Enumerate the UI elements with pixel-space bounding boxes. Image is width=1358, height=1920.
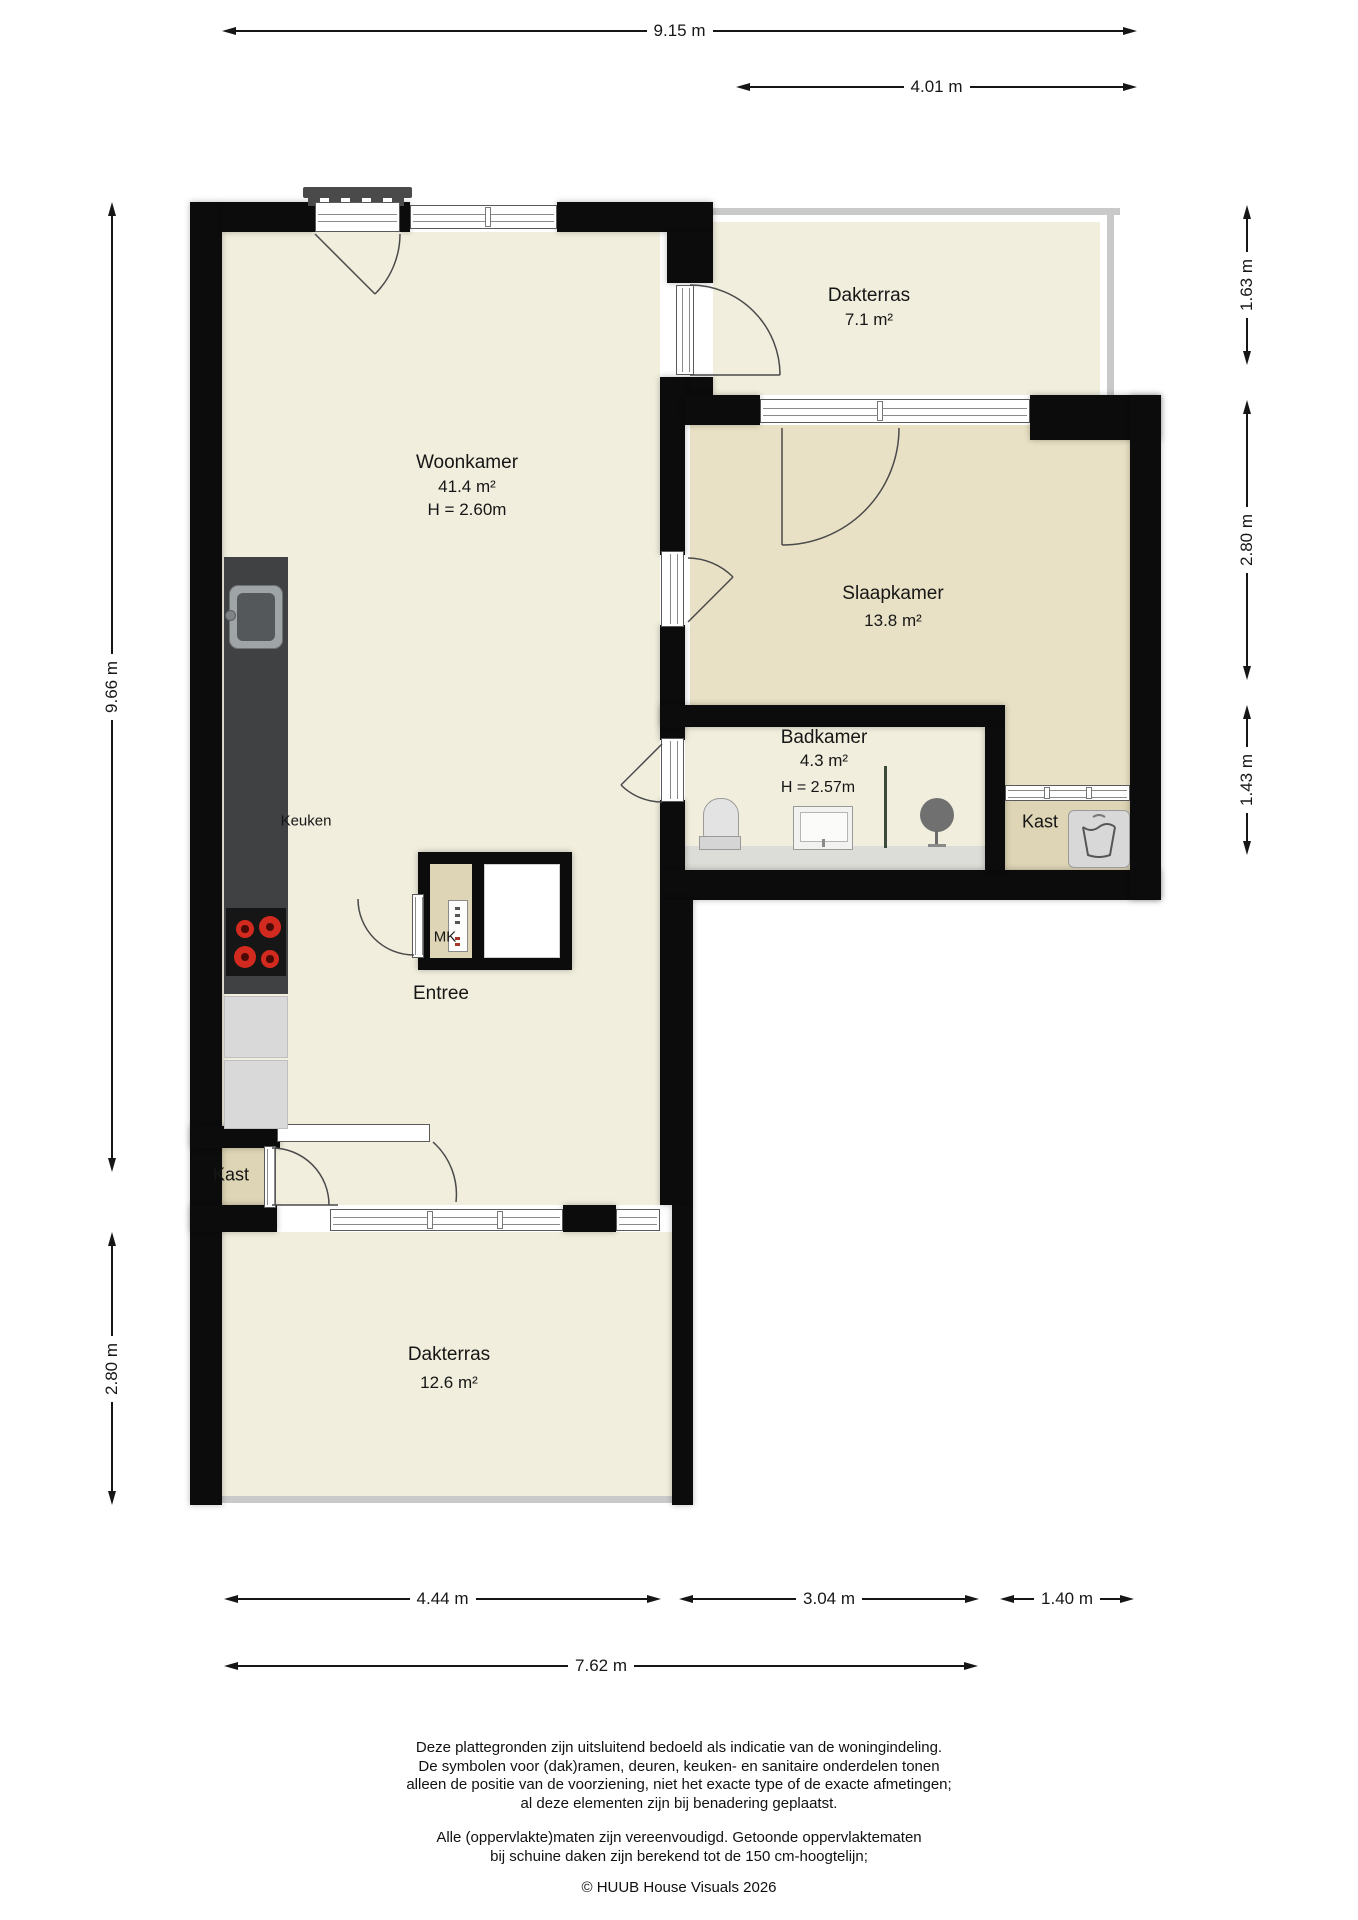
measurement-note-text: Alle (oppervlakte)maten zijn vereenvoudi… xyxy=(0,1829,1358,1866)
badkamer-area: 4.3 m² xyxy=(800,751,848,771)
floorplan-page: Woonkamer 41.4 m² H = 2.60m Dakterras 7.… xyxy=(0,0,1358,1920)
disclaimer-text: Deze plattegronden zijn uitsluitend bedo… xyxy=(0,1739,1358,1813)
slaapkamer-label: Slaapkamer xyxy=(842,583,943,605)
bay-window-swing xyxy=(315,234,400,294)
dakterras-onder-area: 12.6 m² xyxy=(420,1373,478,1393)
dim-top-total: 9.15 m xyxy=(222,22,1137,40)
dakterras-onder-label: Dakterras xyxy=(408,1344,490,1366)
woonkamer-area: 41.4 m² xyxy=(438,477,496,497)
dakterras-top-door-swing xyxy=(690,285,780,375)
disclaimer-line: De symbolen voor (dak)ramen, deuren, keu… xyxy=(0,1758,1358,1777)
dim-left-1: 9.66 m xyxy=(103,202,121,1172)
dim-bottom-2: 3.04 m xyxy=(679,1590,979,1608)
disclaimer-line: Deze plattegronden zijn uitsluitend bedo… xyxy=(0,1739,1358,1758)
slaapkamer-door-swing xyxy=(688,558,733,622)
note-line: bij schuine daken zijn berekend tot de 1… xyxy=(0,1848,1358,1867)
dakterras-top-label: Dakterras xyxy=(828,285,910,307)
disclaimer-line: al deze elementen zijn bij benadering ge… xyxy=(0,1795,1358,1814)
badkamer-label: Badkamer xyxy=(781,727,868,749)
dim-bottom-3: 1.40 m xyxy=(1000,1590,1134,1608)
mk-label: MK xyxy=(434,929,457,946)
dim-bottom-total: 7.62 m xyxy=(224,1657,978,1675)
dim-right-3: 1.43 m xyxy=(1238,705,1256,855)
keuken-label: Keuken xyxy=(281,813,332,830)
dim-top-terrace: 4.01 m xyxy=(736,78,1137,96)
kast-links-label: Kast xyxy=(213,1165,249,1186)
kast-rechts-label: Kast xyxy=(1022,812,1058,833)
woonkamer-label: Woonkamer xyxy=(416,452,518,474)
entree-label: Entree xyxy=(413,983,469,1005)
mk-door-swing xyxy=(358,899,414,955)
door-swings-overlay xyxy=(0,0,1358,1920)
woonkamer-height: H = 2.60m xyxy=(428,500,507,520)
note-line: Alle (oppervlakte)maten zijn vereenvoudi… xyxy=(0,1829,1358,1848)
kast-links-door-swing xyxy=(272,1148,338,1205)
badkamer-height: H = 2.57m xyxy=(781,779,855,797)
dakterras-top-area: 7.1 m² xyxy=(845,310,893,330)
disclaimer-line: alleen de positie van de voorziening, ni… xyxy=(0,1776,1358,1795)
badkamer-door-swing xyxy=(621,744,662,802)
dim-bottom-1: 4.44 m xyxy=(224,1590,661,1608)
credit-text: © HUUB House Visuals 2026 xyxy=(0,1879,1358,1898)
dim-right-2: 2.80 m xyxy=(1238,400,1256,680)
dim-left-2: 2.80 m xyxy=(103,1232,121,1505)
slaapkamer-area: 13.8 m² xyxy=(864,611,922,631)
dim-right-1: 1.63 m xyxy=(1238,205,1256,365)
entry-door-swing xyxy=(433,1142,456,1202)
slaapkamer-window-door-swing xyxy=(782,428,899,545)
